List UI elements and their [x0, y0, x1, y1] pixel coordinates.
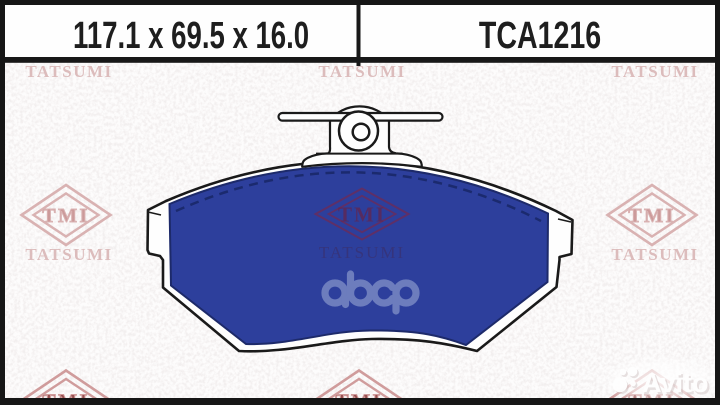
svg-text:TMI: TMI: [338, 203, 386, 227]
svg-text:TATSUMI: TATSUMI: [318, 62, 405, 81]
svg-text:TATSUMI: TATSUMI: [611, 62, 698, 81]
svg-text:Avito: Avito: [642, 368, 709, 398]
svg-text:TATSUMI: TATSUMI: [319, 243, 405, 262]
svg-text:117.1 x 69.5 x 16.0: 117.1 x 69.5 x 16.0: [73, 15, 309, 57]
svg-text:TATSUMI: TATSUMI: [611, 245, 698, 264]
svg-text:TATSUMI: TATSUMI: [25, 245, 112, 264]
svg-text:TCA1216: TCA1216: [479, 15, 601, 57]
svg-text:TATSUMI: TATSUMI: [25, 62, 112, 81]
